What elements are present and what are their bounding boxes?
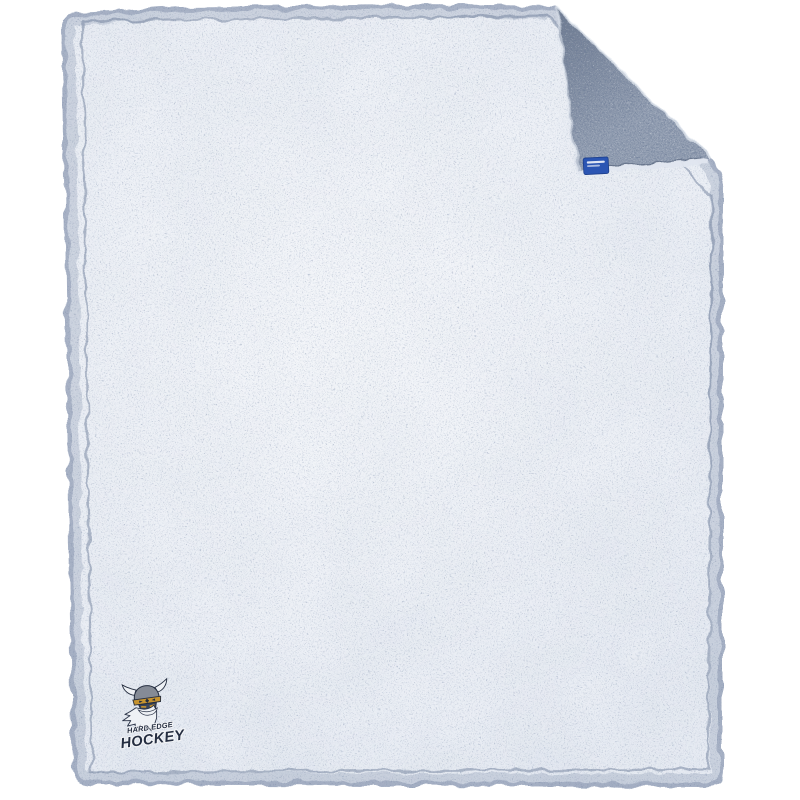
fleece-flecks-dark <box>0 0 800 800</box>
brand-tag <box>583 157 609 175</box>
product-photo-canvas: HARD EDGE HOCKEY <box>0 0 800 800</box>
blanket <box>0 0 800 800</box>
product-photo: HARD EDGE HOCKEY <box>0 0 800 800</box>
blanket-front-texture <box>0 0 800 800</box>
